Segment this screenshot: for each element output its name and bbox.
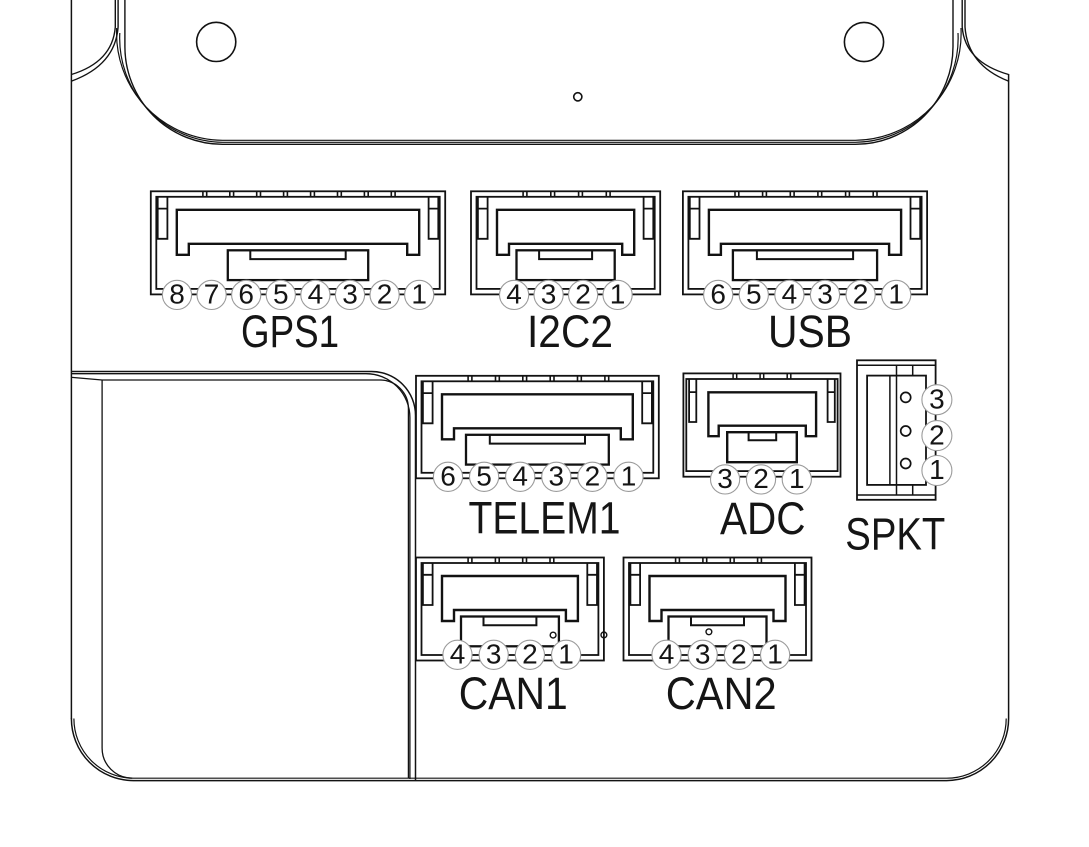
- svg-text:1: 1: [411, 279, 427, 310]
- svg-text:1: 1: [789, 463, 805, 494]
- svg-text:4: 4: [506, 279, 522, 310]
- svg-text:3: 3: [817, 279, 833, 310]
- svg-text:USB: USB: [768, 306, 852, 357]
- svg-text:6: 6: [238, 279, 254, 310]
- svg-text:4: 4: [450, 639, 466, 670]
- svg-text:8: 8: [169, 279, 185, 310]
- svg-text:1: 1: [767, 639, 783, 670]
- svg-text:2: 2: [753, 463, 769, 494]
- svg-text:4: 4: [659, 639, 675, 670]
- svg-text:CAN1: CAN1: [459, 668, 568, 719]
- svg-text:2: 2: [575, 279, 591, 310]
- svg-text:4: 4: [782, 279, 798, 310]
- svg-text:4: 4: [512, 461, 528, 492]
- svg-text:2: 2: [731, 639, 747, 670]
- svg-text:5: 5: [476, 461, 492, 492]
- svg-text:3: 3: [695, 639, 711, 670]
- svg-text:2: 2: [522, 639, 538, 670]
- svg-text:CAN2: CAN2: [666, 668, 777, 719]
- svg-text:3: 3: [717, 463, 733, 494]
- svg-text:3: 3: [486, 639, 502, 670]
- svg-text:2: 2: [853, 279, 869, 310]
- svg-text:6: 6: [440, 461, 456, 492]
- svg-text:1: 1: [558, 639, 574, 670]
- svg-text:2: 2: [585, 461, 601, 492]
- svg-text:1: 1: [929, 454, 945, 485]
- svg-text:ADC: ADC: [720, 493, 806, 544]
- svg-text:6: 6: [710, 279, 726, 310]
- svg-text:2: 2: [929, 419, 945, 450]
- svg-text:3: 3: [541, 279, 557, 310]
- svg-text:7: 7: [204, 279, 220, 310]
- svg-text:SPKT: SPKT: [845, 508, 945, 559]
- svg-text:1: 1: [888, 279, 904, 310]
- svg-text:GPS1: GPS1: [241, 306, 339, 357]
- svg-text:3: 3: [342, 279, 358, 310]
- svg-text:3: 3: [929, 383, 945, 414]
- svg-text:4: 4: [308, 279, 324, 310]
- svg-text:1: 1: [610, 279, 626, 310]
- svg-text:I2C2: I2C2: [527, 306, 613, 357]
- svg-text:1: 1: [621, 461, 637, 492]
- svg-text:TELEM1: TELEM1: [469, 493, 621, 544]
- svg-text:3: 3: [549, 461, 565, 492]
- svg-text:2: 2: [377, 279, 393, 310]
- svg-text:5: 5: [273, 279, 289, 310]
- svg-text:5: 5: [746, 279, 762, 310]
